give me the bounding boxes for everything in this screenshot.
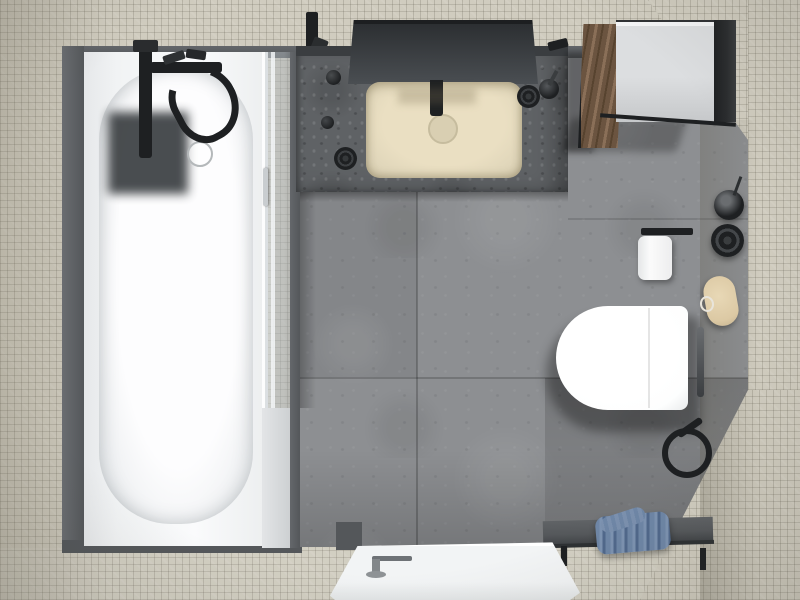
shower-screen-glass bbox=[262, 52, 292, 408]
tub-drain-ring bbox=[187, 141, 213, 167]
bath-mixer-wall-mount bbox=[133, 40, 158, 52]
bathroom-render bbox=[0, 0, 800, 600]
toilet-lid-seam bbox=[648, 308, 650, 408]
tub-deck-foot-end bbox=[262, 408, 290, 548]
shower-valve-disc bbox=[711, 224, 744, 257]
wall-cup bbox=[714, 190, 744, 220]
shower-tray bbox=[330, 540, 580, 600]
vanity-mirror bbox=[348, 20, 538, 84]
counter-knob-2 bbox=[321, 116, 334, 129]
bench-leg-right bbox=[700, 548, 706, 570]
toilet bbox=[556, 306, 688, 410]
small-wall-knob bbox=[717, 256, 733, 272]
toilet-paper-roll bbox=[638, 236, 672, 280]
grab-bar bbox=[697, 327, 704, 397]
cabinet-side-dark bbox=[714, 20, 736, 122]
toilet-paper-arm bbox=[641, 228, 693, 235]
wall-base-left bbox=[62, 46, 84, 552]
screen-towel-bar bbox=[263, 168, 268, 206]
sink-drain bbox=[428, 114, 458, 144]
counter-knob-1 bbox=[326, 70, 341, 85]
counter-dotted-disc-left bbox=[334, 147, 357, 170]
sink-tap-shadow bbox=[398, 88, 476, 104]
tray-wall-patch bbox=[336, 522, 362, 550]
counter-dotted-disc-right bbox=[517, 85, 540, 108]
tray-drain-base bbox=[366, 571, 386, 578]
cabinet-top bbox=[616, 20, 716, 122]
mosaic-right-shade bbox=[700, 120, 800, 600]
shower-valve-ring bbox=[662, 428, 712, 478]
